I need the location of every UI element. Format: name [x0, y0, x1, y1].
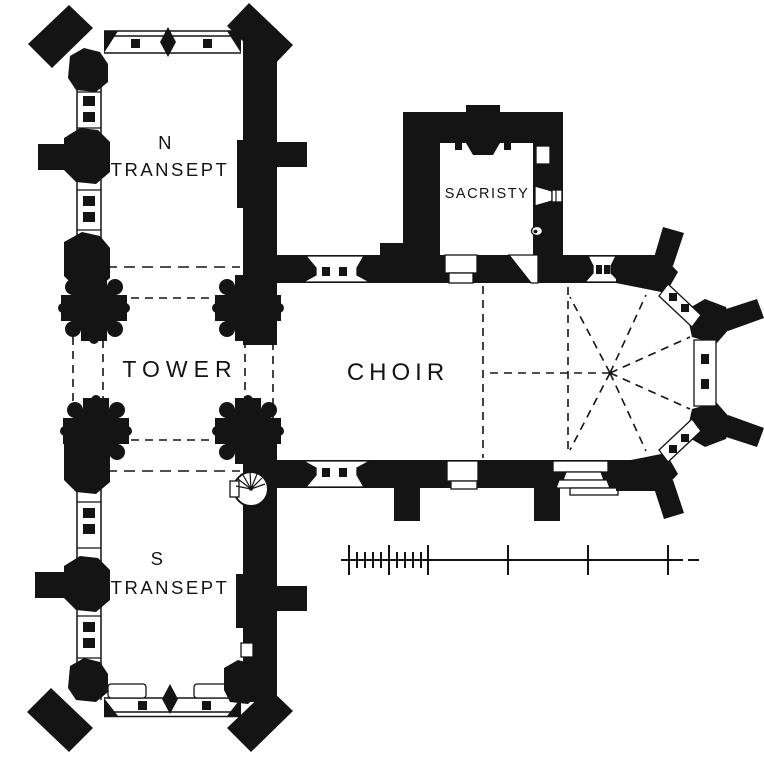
mullion — [669, 293, 677, 301]
window-seat-west — [108, 684, 146, 698]
east-window — [694, 340, 716, 406]
label-n-transept-line1: N — [158, 132, 174, 153]
mullion — [322, 267, 330, 276]
east-wall-recess-jamb — [244, 658, 251, 667]
nw-wall-pier — [64, 436, 110, 494]
turret-doorway — [230, 481, 239, 497]
jamb-notch — [455, 143, 462, 150]
ne-angle-buttress — [720, 299, 764, 331]
label-choir: CHOIR — [347, 359, 449, 386]
door-to-choir — [445, 255, 477, 283]
scale-bar — [341, 545, 699, 575]
mullion — [339, 468, 347, 477]
mullion — [681, 304, 689, 312]
chimney-breast — [466, 143, 500, 155]
piscina-sacristy — [532, 227, 543, 236]
west-buttress — [35, 572, 68, 598]
mullion — [701, 354, 709, 364]
label-tower: TOWER — [122, 356, 237, 382]
vault-rib-lines — [486, 295, 690, 451]
label-sacristy: SACRISTY — [445, 186, 530, 202]
west-wall-pier — [64, 556, 110, 612]
center-mullion-diamond — [162, 684, 178, 714]
wall-cupboard — [536, 146, 550, 164]
label-s-transept-line1: S — [151, 548, 166, 569]
east-buttress — [277, 142, 307, 167]
nw-crossing-pier — [58, 272, 130, 344]
label-n-transept-line2: TRANSEPT — [111, 159, 230, 180]
stair-turret — [230, 472, 268, 506]
mullion — [681, 434, 689, 442]
west-wall-pier — [64, 128, 110, 184]
east-wall-respond — [236, 574, 248, 628]
east-buttress — [277, 586, 307, 611]
choir-walls — [263, 243, 645, 521]
nw-corner-pier — [68, 48, 108, 92]
priests-door — [447, 461, 478, 489]
church-floor-plan: N TRANSEPT TOWER CHOIR SACRISTY S TRANSE… — [0, 0, 764, 758]
south-buttress-east — [534, 488, 560, 521]
apse-masonry — [616, 227, 764, 519]
south-angle-buttress — [653, 480, 684, 519]
mullion — [669, 445, 677, 453]
sw-corner-pier — [68, 658, 108, 702]
apse-walls — [616, 227, 764, 519]
east-wall-respond — [237, 140, 245, 208]
mullion — [604, 265, 610, 274]
newel — [249, 487, 253, 491]
se-angle-buttress — [720, 415, 764, 447]
north-angle-buttress — [653, 227, 684, 266]
west-buttress — [38, 144, 70, 170]
mullion — [339, 267, 347, 276]
mullion — [322, 468, 330, 477]
mullion — [701, 379, 709, 389]
label-s-transept-line2: TRANSEPT — [111, 577, 230, 598]
north-buttress — [380, 243, 405, 257]
floor-plan-drawing: N TRANSEPT TOWER CHOIR SACRISTY S TRANSE… — [0, 0, 764, 758]
choir-bay-lines — [483, 286, 568, 458]
east-wall-recess — [241, 643, 253, 657]
mullion — [596, 265, 602, 274]
south-buttress-west — [394, 488, 420, 521]
chimney-outer — [466, 105, 500, 113]
jamb-notch — [504, 143, 511, 150]
